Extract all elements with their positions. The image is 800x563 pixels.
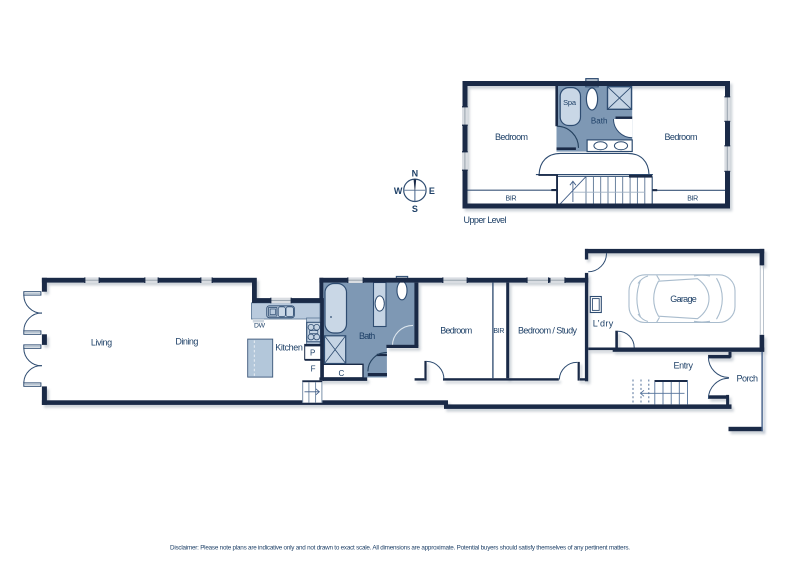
svg-text:Bedroom / Study: Bedroom / Study: [518, 326, 578, 336]
svg-text:Living: Living: [91, 337, 112, 347]
svg-text:Disclaimer: Please note plans: Disclaimer: Please note plans are indica…: [170, 545, 630, 552]
svg-text:W: W: [394, 186, 403, 196]
svg-text:Dining: Dining: [175, 337, 198, 347]
svg-text:Porch: Porch: [737, 374, 759, 384]
svg-text:P: P: [310, 349, 315, 358]
svg-text:DW: DW: [254, 322, 266, 329]
svg-text:Upper Level: Upper Level: [464, 215, 507, 225]
svg-text:Bedroom: Bedroom: [665, 132, 698, 142]
svg-text:Bath: Bath: [591, 117, 608, 126]
svg-text:BIR: BIR: [506, 195, 517, 202]
svg-text:S: S: [412, 204, 418, 214]
svg-text:C: C: [339, 369, 345, 378]
svg-text:BIR: BIR: [493, 328, 504, 335]
svg-text:F: F: [311, 365, 316, 374]
svg-text:BIR: BIR: [687, 195, 698, 202]
svg-text:Garage: Garage: [670, 294, 697, 304]
svg-text:E: E: [429, 186, 435, 196]
svg-text:Kitchen: Kitchen: [275, 342, 303, 352]
svg-text:L’dry: L’dry: [593, 319, 614, 329]
svg-text:Bedroom: Bedroom: [440, 326, 472, 336]
svg-text:Bedroom: Bedroom: [495, 132, 528, 142]
svg-text:Spa: Spa: [563, 98, 577, 107]
svg-text:Entry: Entry: [674, 360, 694, 370]
svg-text:Bath: Bath: [359, 331, 375, 341]
svg-text:N: N: [412, 168, 419, 178]
